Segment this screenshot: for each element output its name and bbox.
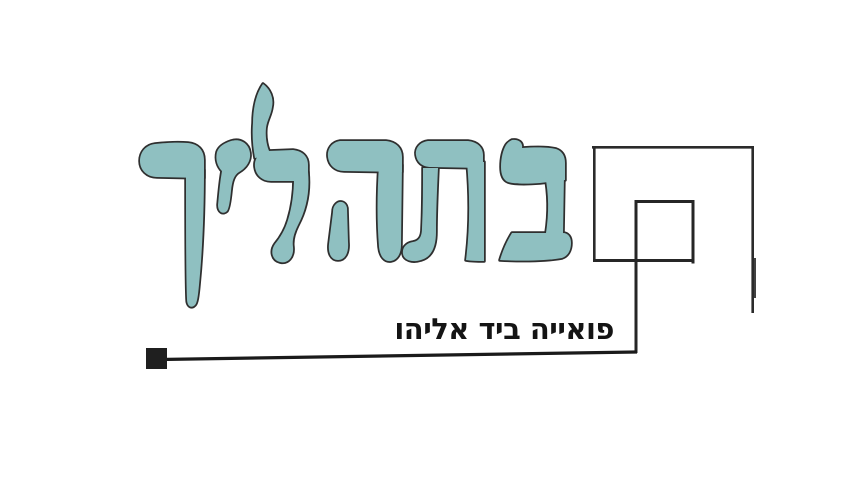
wordmark-outline-layer <box>140 84 571 307</box>
logo-canvas: בתהליך פואייה ביד אליהו <box>0 0 847 501</box>
outer-frame-shape <box>592 146 754 313</box>
inner-square-shape <box>635 200 695 353</box>
square-marker <box>146 348 167 369</box>
baseline-rule-line <box>160 352 637 360</box>
logo-graphic <box>0 0 847 501</box>
subtitle-text: פואייה ביד אליהו <box>394 315 614 344</box>
